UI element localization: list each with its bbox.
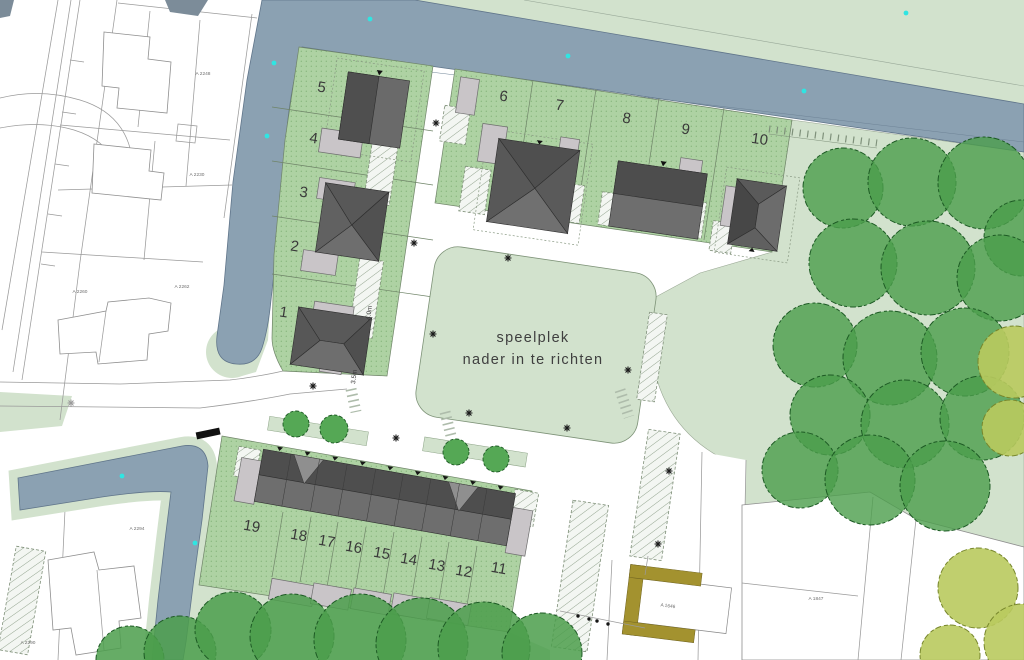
- lamp-star: [433, 120, 440, 127]
- lamp-star: [666, 468, 673, 475]
- playground-label-line1: speelplek: [497, 330, 570, 346]
- lot-number: 16: [344, 538, 363, 558]
- parcel-label: A 2248: [196, 71, 211, 77]
- lamp-star: [655, 541, 662, 548]
- lot-number: 19: [242, 517, 261, 537]
- lamp-star: [393, 435, 400, 442]
- lot-number: 13: [427, 556, 446, 576]
- street-stub-corner: [0, 0, 14, 18]
- house-lots-2-3: [315, 183, 389, 262]
- lot-number: 11: [490, 559, 508, 578]
- playground: speelplek nader in te richten: [413, 244, 660, 447]
- lot-number: 12: [454, 562, 473, 582]
- lot-number: 14: [399, 550, 418, 570]
- lamp-star: [625, 367, 632, 374]
- parcel-label: A 1847: [809, 596, 824, 602]
- parcel-label: A 2262: [175, 284, 190, 290]
- bridge-bar: [196, 428, 221, 440]
- existing-house: [58, 298, 171, 364]
- house-lots-6-7: [486, 135, 580, 234]
- parcel-label: A 2260: [73, 289, 88, 295]
- house-lot-10: [727, 179, 787, 256]
- existing-house: [102, 32, 171, 113]
- playground-label-line2: nader in te richten: [463, 352, 604, 368]
- dimension-label: 3.5m: [350, 369, 359, 384]
- lot-number: 18: [289, 526, 308, 546]
- lamp-star: [505, 255, 512, 262]
- lamp-star: [564, 425, 571, 432]
- parcel-label: A 2290: [21, 640, 36, 646]
- site-plan: speelplek nader in te richten A 1847: [0, 0, 1024, 660]
- street-stub-top: [165, 0, 208, 16]
- lamp-star: [411, 240, 418, 247]
- parcel-label: A 2230: [190, 172, 205, 178]
- parcel-label: A 2294: [130, 526, 145, 532]
- lamp-star: [430, 331, 437, 338]
- existing-house: [92, 144, 164, 200]
- lamp-star: [466, 410, 473, 417]
- lamp-star: [310, 383, 317, 390]
- lot-number: 17: [317, 532, 336, 552]
- lamp-star-outline: [68, 400, 75, 407]
- lot-number: 15: [372, 544, 391, 564]
- lot-number: 10: [750, 130, 769, 149]
- house-lot-1: [290, 307, 372, 375]
